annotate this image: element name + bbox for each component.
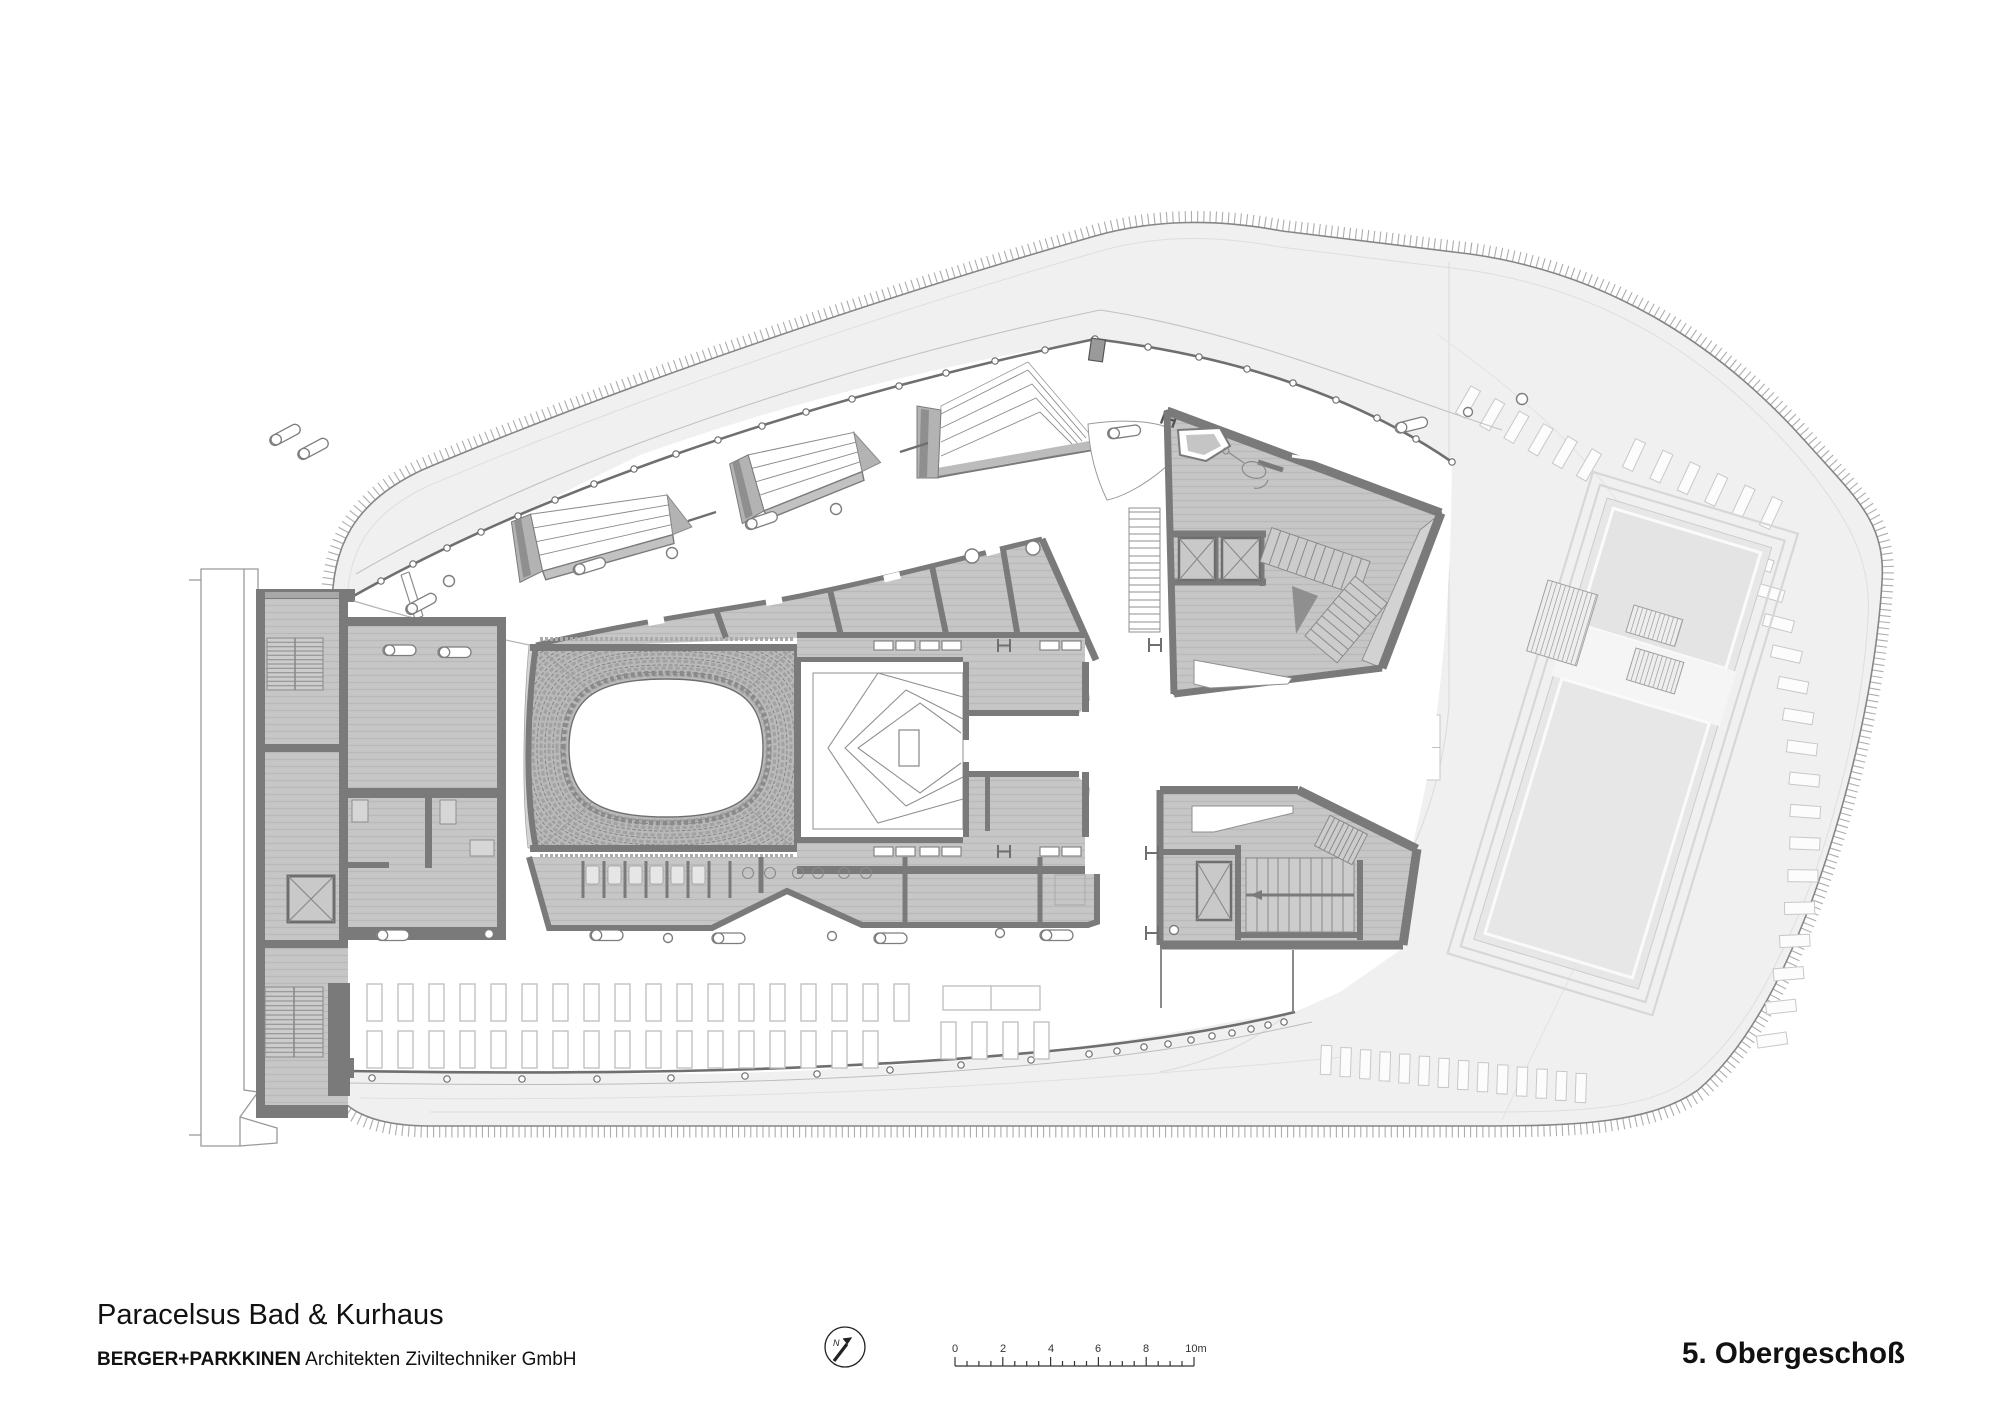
svg-text:10m: 10m [1185, 1343, 1206, 1355]
svg-text:N: N [833, 1338, 840, 1348]
svg-text:2: 2 [1000, 1343, 1006, 1355]
svg-text:Paracelsus Bad & Kurhaus: Paracelsus Bad & Kurhaus [97, 1299, 444, 1331]
svg-text:0: 0 [952, 1343, 958, 1355]
svg-text:4: 4 [1048, 1343, 1054, 1355]
svg-text:6: 6 [1095, 1343, 1101, 1355]
svg-text:5. Obergeschoß: 5. Obergeschoß [1682, 1337, 1905, 1370]
svg-text:BERGER+PARKKINEN Architekten Z: BERGER+PARKKINEN Architekten Ziviltechni… [97, 1349, 577, 1370]
svg-text:8: 8 [1143, 1343, 1149, 1355]
